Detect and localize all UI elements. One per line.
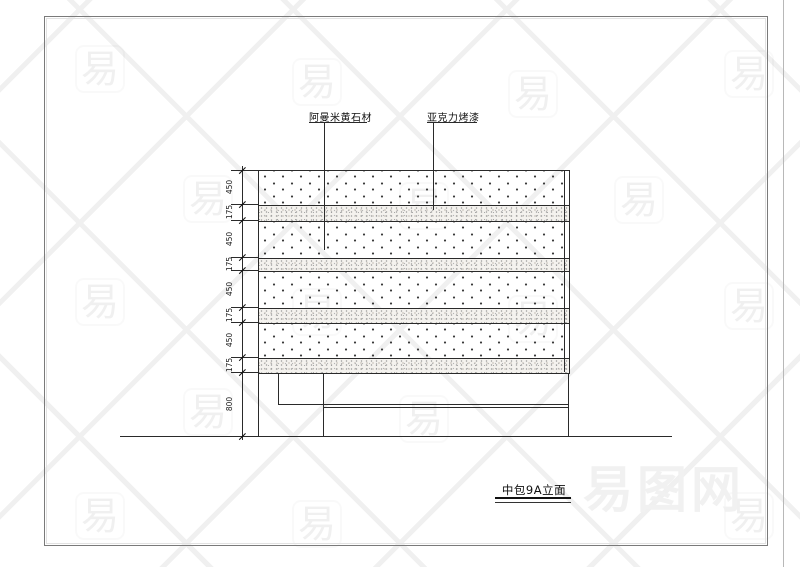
dimension-extension-line bbox=[231, 204, 258, 205]
plinth-step-vertical-1 bbox=[278, 373, 279, 404]
elevation-band-stone bbox=[259, 271, 569, 308]
plinth-right-edge bbox=[568, 373, 569, 436]
dimension-value: 175 bbox=[225, 250, 235, 278]
dimension-value: 450 bbox=[225, 326, 235, 354]
dimension-value: 450 bbox=[225, 173, 235, 201]
callout-acrylic-leader bbox=[433, 122, 434, 210]
dimension-extension-line bbox=[231, 357, 258, 358]
dimension-value: 175 bbox=[225, 198, 235, 226]
plinth-left-edge bbox=[258, 373, 259, 436]
dimension-value: 175 bbox=[225, 351, 235, 379]
callout-acrylic-underline bbox=[427, 122, 477, 123]
dimension-extension-line bbox=[231, 170, 258, 171]
elevation-band-stone bbox=[259, 221, 569, 258]
callout-stone-leader bbox=[324, 122, 325, 250]
callout-stone-underline bbox=[309, 122, 367, 123]
drawing-title-underline-thin bbox=[495, 502, 571, 503]
plinth-step-vertical-2 bbox=[323, 373, 324, 436]
elevation-band-acrylic bbox=[259, 258, 569, 271]
dimension-extension-line bbox=[231, 307, 258, 308]
elevation-band-stone bbox=[259, 323, 569, 358]
elevation-right-inner-line bbox=[564, 171, 565, 372]
elevation-band-acrylic bbox=[259, 358, 569, 373]
drawing-sheet: 易 易 易 易 易 易 易 易 易 易 易 易 易 易 易 易 易图网 4501… bbox=[0, 0, 800, 567]
dimension-extension-line bbox=[231, 436, 258, 437]
dimension-extension-line bbox=[231, 220, 258, 221]
dimension-value: 450 bbox=[225, 225, 235, 253]
dimension-value: 450 bbox=[225, 275, 235, 303]
plinth-step-horizontal-2 bbox=[323, 407, 568, 408]
drawing-title-underline-thick bbox=[495, 497, 571, 499]
dimension-value: 800 bbox=[225, 390, 235, 418]
elevation-band-stack bbox=[258, 170, 570, 374]
dimension-extension-line bbox=[231, 270, 258, 271]
elevation-band-acrylic bbox=[259, 205, 569, 221]
dimension-extension-line bbox=[231, 257, 258, 258]
plinth-step-horizontal-1 bbox=[278, 404, 568, 405]
dimension-value: 175 bbox=[225, 301, 235, 329]
ground-line bbox=[120, 436, 672, 437]
dimension-extension-line bbox=[231, 322, 258, 323]
dimension-extension-line bbox=[231, 372, 258, 373]
elevation-band-stone bbox=[259, 171, 569, 205]
drawing-title: 中包9A立面 bbox=[497, 482, 571, 498]
dimension-line bbox=[242, 166, 243, 440]
elevation-band-acrylic bbox=[259, 308, 569, 323]
right-margin-line bbox=[783, 0, 784, 567]
